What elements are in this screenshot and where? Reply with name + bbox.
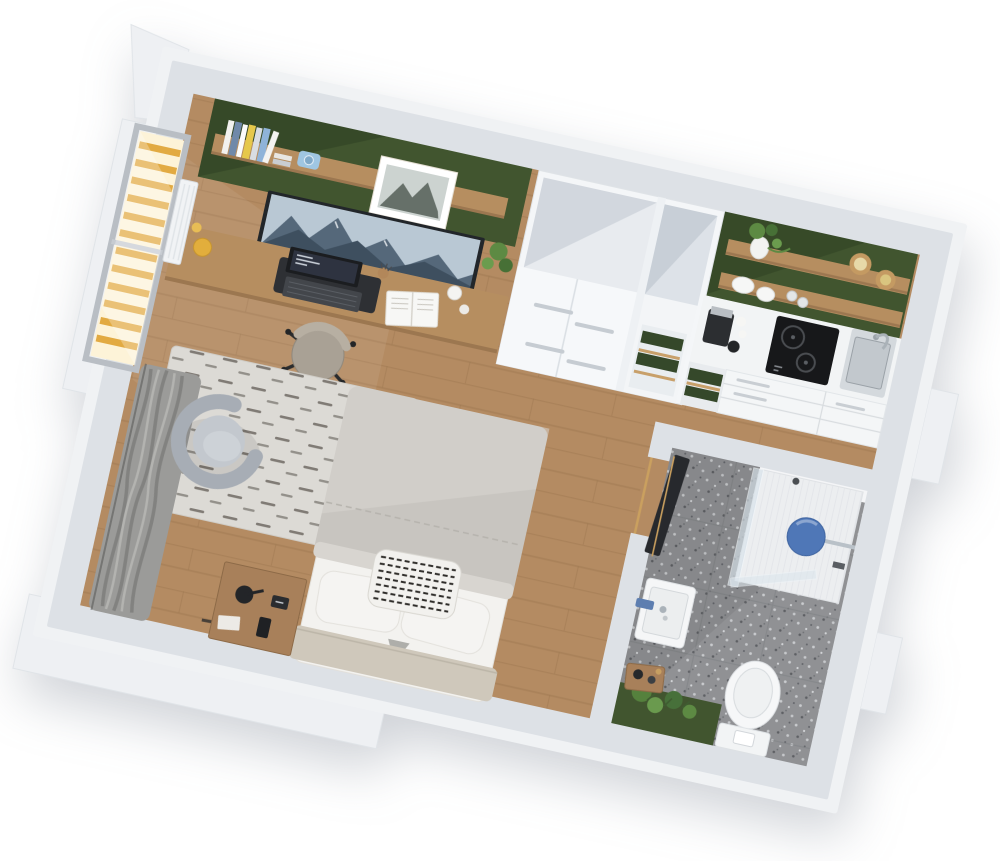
wooden-tray bbox=[624, 663, 665, 693]
tray-board bbox=[624, 663, 665, 693]
small-book bbox=[217, 615, 240, 631]
notebook bbox=[385, 291, 438, 327]
apartment-svg bbox=[0, 0, 1000, 861]
floor-plan-render bbox=[0, 0, 1000, 861]
apartment-plan bbox=[0, 25, 998, 856]
